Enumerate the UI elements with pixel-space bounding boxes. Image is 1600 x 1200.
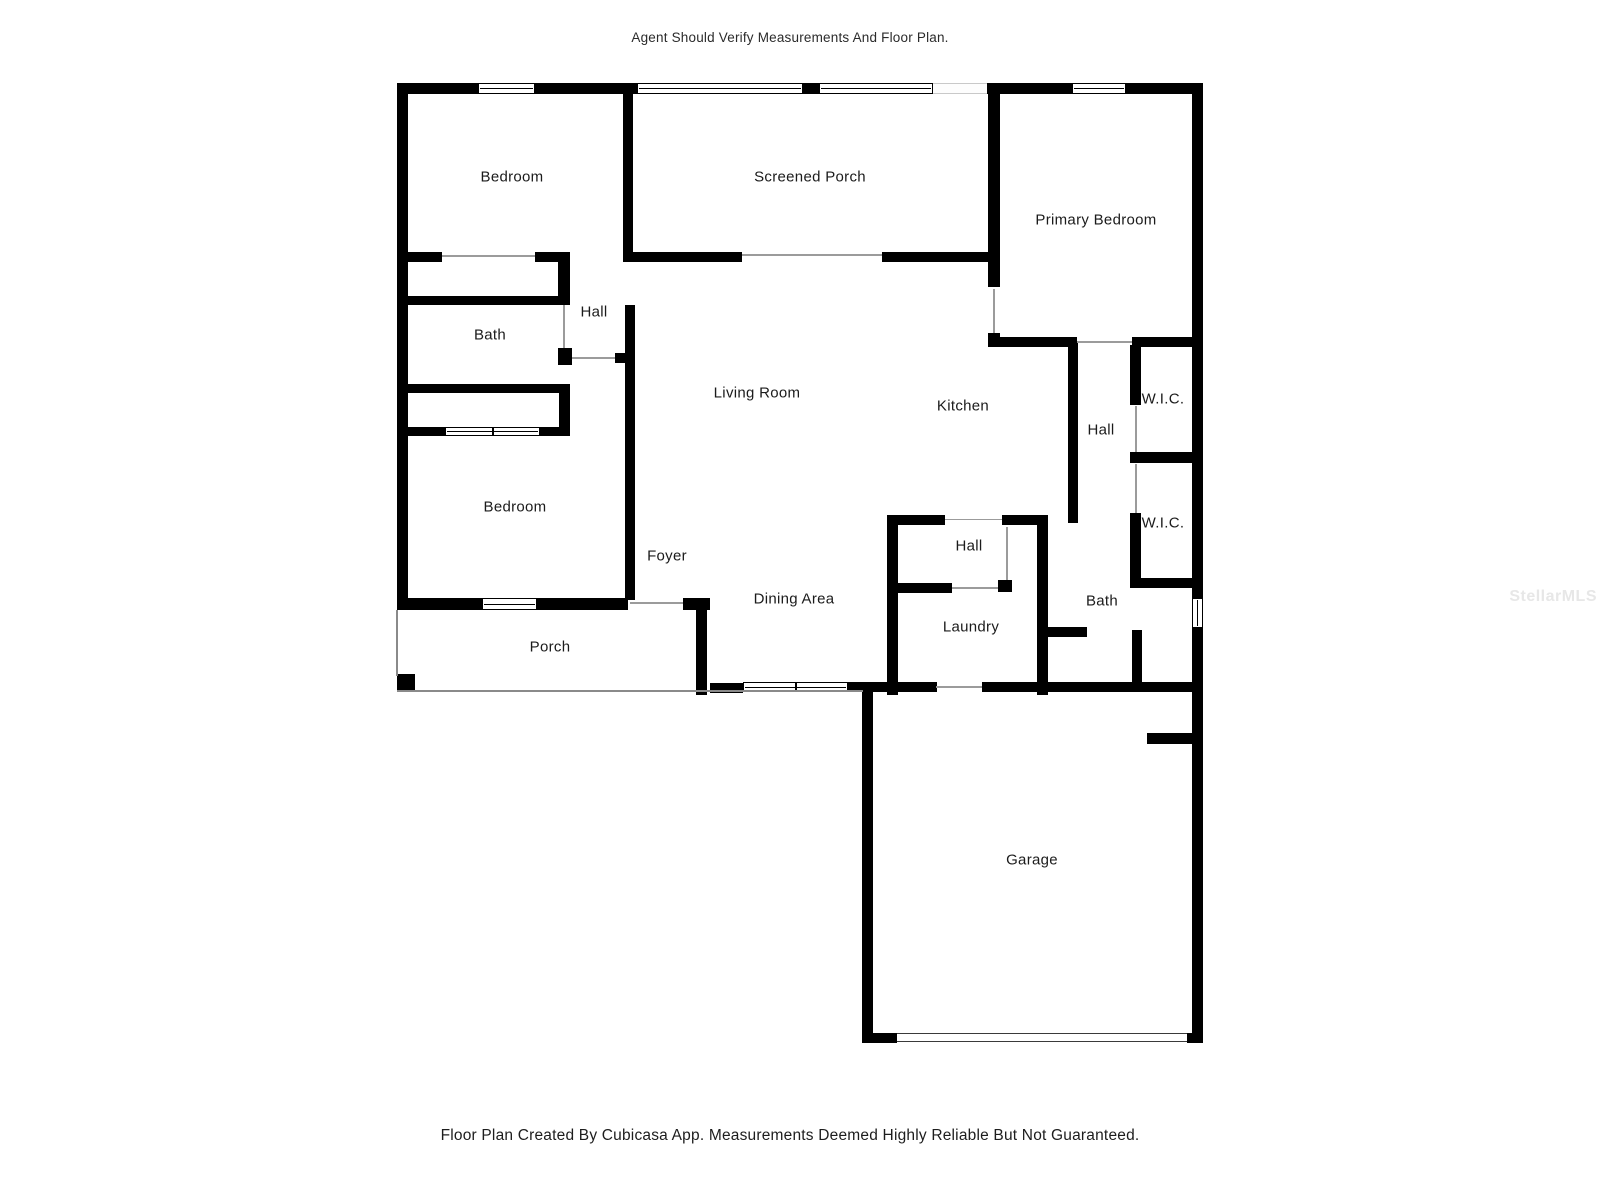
screen-opening (933, 83, 987, 94)
window (478, 83, 535, 94)
wall-segment (397, 384, 570, 393)
wall-segment (535, 83, 637, 94)
room-label-hall-2: Hall (1087, 422, 1114, 439)
door-opening-line (572, 357, 615, 359)
door-opening-line (936, 686, 982, 688)
wall-segment (397, 427, 445, 436)
wall-segment (882, 252, 1000, 262)
window (1072, 83, 1126, 94)
door-opening-line (945, 519, 1002, 520)
wall-segment (862, 692, 873, 1043)
door-opening-line (1006, 527, 1008, 580)
wall-segment (998, 580, 1012, 592)
window (1192, 598, 1203, 628)
wall-segment (1130, 513, 1141, 588)
window-pane-line (639, 88, 801, 89)
sliding-door-divider (492, 428, 494, 435)
window (637, 83, 803, 94)
wall-segment (1037, 515, 1048, 695)
wall-segment (625, 305, 635, 600)
top-disclaimer-text: Agent Should Verify Measurements And Flo… (0, 30, 1580, 45)
room-label-dining-area: Dining Area (754, 591, 835, 608)
wall-segment (887, 583, 952, 593)
wall-segment (887, 515, 898, 695)
wall-segment (993, 337, 1077, 347)
room-label-wic-2: W.I.C. (1142, 515, 1185, 532)
door-opening-line (742, 254, 882, 256)
wall-segment (803, 83, 819, 94)
window-pane-line (821, 88, 931, 89)
room-label-bedroom-2: Bedroom (484, 499, 547, 516)
wall-segment (1130, 578, 1203, 588)
wall-segment (397, 674, 415, 690)
wall-segment (696, 605, 707, 695)
room-label-porch: Porch (530, 639, 571, 656)
window-pane-line (1074, 88, 1124, 89)
wall-segment (397, 83, 478, 94)
window (819, 83, 933, 94)
wall-segment (887, 515, 945, 525)
window (482, 598, 537, 610)
wall-segment (615, 353, 625, 363)
porch-outline (397, 690, 863, 692)
room-label-hall-1: Hall (580, 304, 607, 321)
door-opening-line (1077, 341, 1132, 343)
wall-segment (537, 598, 628, 610)
wall-segment (1068, 342, 1078, 523)
wall-segment (397, 83, 408, 610)
door-opening-line (563, 305, 565, 348)
wall-segment (623, 94, 633, 262)
wall-segment (982, 682, 1203, 692)
room-label-bedroom-1: Bedroom (481, 169, 544, 186)
wall-segment (558, 348, 572, 365)
room-label-bath-2: Bath (1086, 593, 1118, 610)
wall-segment (535, 252, 570, 262)
wall-segment (397, 598, 482, 610)
porch-outline (396, 610, 398, 676)
door-opening-line (630, 602, 683, 604)
room-label-wic-1: W.I.C. (1142, 391, 1185, 408)
wall-segment (1147, 733, 1203, 744)
wall-segment (397, 296, 570, 305)
room-label-living-room: Living Room (714, 385, 801, 402)
wall-segment (1130, 345, 1141, 405)
room-label-laundry: Laundry (943, 619, 999, 636)
wall-segment (1132, 337, 1203, 347)
door-opening-line (993, 289, 995, 333)
floor-plan: Agent Should Verify Measurements And Flo… (0, 0, 1600, 1200)
room-label-primary-bedroom: Primary Bedroom (1035, 212, 1156, 229)
wall-segment (558, 262, 570, 305)
window-pane-line (1197, 600, 1198, 626)
door-opening-line (442, 255, 535, 257)
room-label-kitchen: Kitchen (937, 398, 989, 415)
window-pane-line (484, 604, 535, 605)
wall-segment (987, 83, 1072, 94)
wall-segment (862, 1033, 897, 1043)
wall-segment (1043, 627, 1087, 637)
wall-segment (540, 427, 570, 436)
room-label-bath-1: Bath (474, 327, 506, 344)
door-opening-line (952, 587, 998, 589)
wall-segment (1187, 1033, 1203, 1043)
window-pane-line (480, 88, 533, 89)
garage-door-line (897, 1033, 1187, 1042)
wall-segment (630, 252, 742, 262)
door-opening-line (1135, 406, 1137, 452)
stellar-mls-watermark: StellarMLS (1509, 588, 1597, 606)
wall-segment (1130, 452, 1203, 463)
room-label-screened-porch: Screened Porch (754, 169, 866, 186)
room-label-hall-3: Hall (955, 538, 982, 555)
door-opening-line (1135, 464, 1137, 513)
room-label-garage: Garage (1006, 852, 1058, 869)
bottom-disclaimer-text: Floor Plan Created By Cubicasa App. Meas… (0, 1127, 1580, 1145)
wall-segment (988, 94, 1000, 287)
room-label-foyer: Foyer (647, 548, 687, 565)
window (445, 427, 540, 436)
wall-segment (397, 252, 442, 262)
wall-segment (1132, 630, 1142, 685)
